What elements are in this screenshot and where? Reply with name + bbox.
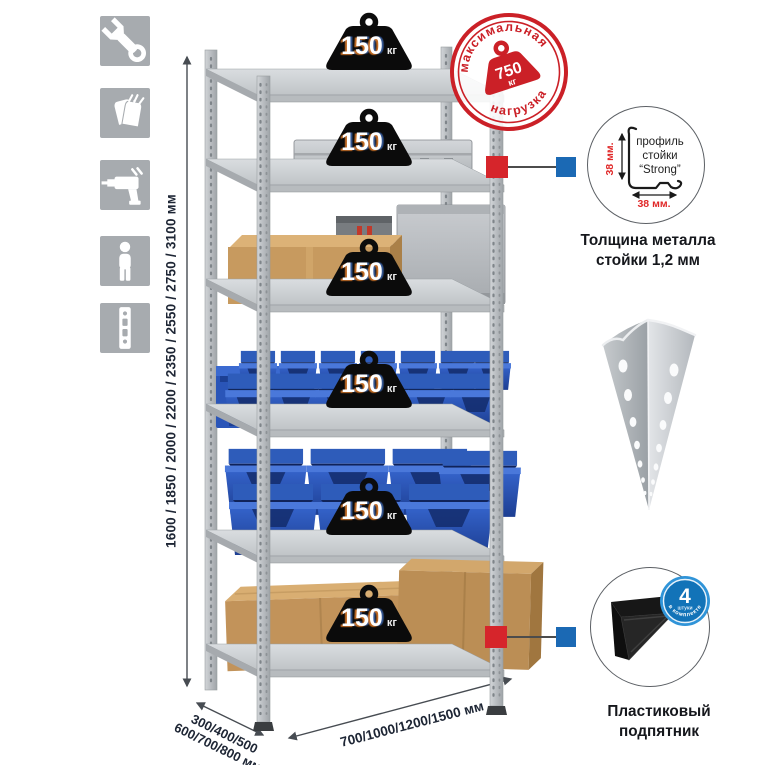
load-value: 150 [341, 130, 383, 155]
load-unit: кг [387, 272, 397, 283]
red-marker-bottom [485, 626, 507, 648]
profile-detail-circle: 38 мм. 38 мм. профиль стойки “Strong” [587, 106, 705, 224]
profile-dim-vertical: 38 мм. [604, 142, 616, 175]
plastic-foot-left [253, 722, 274, 731]
load-value: 150 [341, 499, 383, 524]
load-unit: кг [387, 142, 397, 153]
profile-label-line1: профиль [636, 136, 684, 148]
shelf-6 [206, 644, 504, 677]
load-unit: кг [387, 618, 397, 629]
profile-dim-horizontal: 38 мм. [637, 198, 670, 210]
load-unit: кг [387, 511, 397, 522]
plastic-foot-right [486, 706, 507, 715]
load-unit: кг [387, 384, 397, 395]
load-value: 150 [341, 34, 383, 59]
shelf3-load-weight: 150кг [325, 238, 413, 302]
shelf2-load-weight: 150кг [325, 108, 413, 172]
width-dimension-line [289, 679, 511, 738]
max-load-stamp: 750 кг максимальная нагрузка [444, 7, 574, 137]
quantity-badge: 4 штуки в комплекте [658, 574, 712, 628]
depth-dimension-line [197, 703, 263, 735]
shelf1-load-weight: 150кг [325, 12, 413, 76]
load-unit: кг [387, 46, 397, 57]
callout-marker-top [486, 156, 576, 178]
shelf5-load-weight: 150кг [325, 477, 413, 541]
load-value: 150 [341, 606, 383, 631]
profile-label-line3: “Strong” [639, 164, 681, 176]
badge-small-text: штуки [677, 606, 692, 612]
blue-marker-bottom [556, 627, 576, 647]
shelf6-load-weight: 150кг [325, 584, 413, 648]
profile-label-line2: стойки [642, 150, 677, 162]
red-marker-top [486, 156, 508, 178]
load-value: 150 [341, 260, 383, 285]
blue-marker-top [556, 157, 576, 177]
infographic-canvas: 1600 / 1850 / 2000 / 2200 / 2350 / 2550 … [0, 0, 765, 765]
load-value: 150 [341, 372, 383, 397]
shelf4-load-weight: 150кг [325, 350, 413, 414]
